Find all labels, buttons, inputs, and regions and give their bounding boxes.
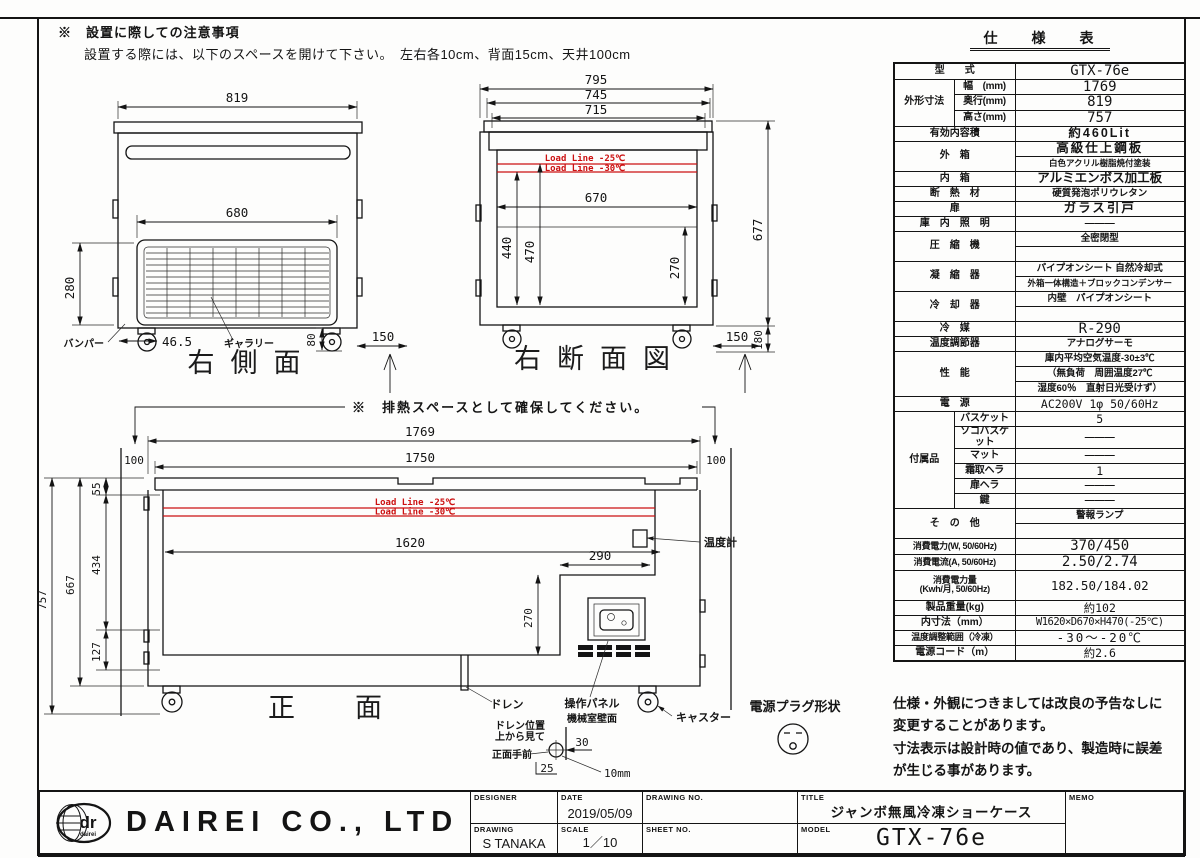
spec-row: 温度調整範囲（冷凍）-30〜-20℃: [894, 630, 1185, 645]
plug-shape-label: 電源プラグ形状: [749, 699, 841, 714]
spec-cell: 警報ランプ: [1015, 509, 1185, 524]
thermometer-label: 温度計: [704, 535, 737, 549]
drain-detail: ドレン位置 上から見て 機械室壁面 30 正面手前 25 10mm: [492, 712, 631, 780]
spec-row: 扉ガラス引戸: [894, 201, 1185, 216]
spec-cell: AC200V 1φ 50/60Hz: [1015, 397, 1185, 412]
spec-cell: ———: [1015, 494, 1185, 509]
drain-pos-label-2: 上から見て: [495, 730, 545, 743]
dim-lid-height: 55: [90, 482, 103, 495]
spec-cell: 約2.6: [1015, 645, 1185, 661]
title-cell: TITLE ジャンボ無風冷凍ショーケース: [797, 792, 1065, 823]
dim-drain-10mm: 10mm: [604, 767, 631, 780]
spec-cell: 内 箱: [894, 171, 1015, 186]
caster-label: キャスター: [676, 711, 731, 724]
dim-total-height: 757: [36, 590, 49, 610]
date-value: 2019/05/09: [558, 806, 642, 821]
spec-cell: 温度調節器: [894, 337, 1015, 352]
spec-cell: 外形寸法: [894, 79, 954, 126]
spec-row: 付属品バスケット5: [894, 412, 1185, 427]
dim-depth-270: 270: [667, 257, 682, 280]
spec-cell: マット: [954, 449, 1015, 464]
company-name: DAIREI CO., LTD: [126, 806, 459, 839]
spec-cell: 扉ヘラ: [954, 479, 1015, 494]
designer-cell: DESIGNER: [470, 792, 557, 823]
dim-body-height: 667: [64, 575, 77, 595]
spec-cell: 370/450: [1015, 539, 1185, 555]
spec-cell: -30〜-20℃: [1015, 630, 1185, 645]
dim-top-715: 715: [585, 102, 608, 117]
spec-table-body: 型 式GTX-76e外形寸法幅 (mm)1769奥行(mm)819高さ(mm)7…: [894, 63, 1185, 661]
drawing-no-cell: DRAWING NO.: [642, 792, 797, 823]
sheet-no-label: SHEET NO.: [646, 825, 691, 834]
dairei-logo: dr dairei: [54, 799, 116, 847]
dim-base-180: 180: [752, 330, 765, 350]
date-label: DATE: [561, 793, 583, 802]
disclaimer-line: 仕様・外観につきましては改良の予告なしに: [893, 693, 1193, 715]
spec-cell: 高級仕上鋼板: [1015, 141, 1185, 156]
spec-row: 凝 縮 器パイプオンシート 自然冷却式: [894, 261, 1185, 276]
machine-wall-label: 機械室壁面: [567, 712, 617, 725]
drawing-label: DRAWING: [474, 825, 514, 834]
side-view-title: 右側面: [188, 348, 317, 378]
dim-machine-height: 270: [522, 608, 535, 628]
spec-cell: （無負荷 周囲温度27℃: [1015, 367, 1185, 382]
dim-gap-left: 100: [124, 454, 144, 467]
disclaimer-line: 変更することがあります。: [893, 715, 1193, 737]
model-value: GTX-76e: [798, 825, 1065, 851]
front-view: ※ 排熱スペースとして確保してください。 100 100 1769 1750 L…: [36, 400, 737, 724]
dim-base-height: 127: [90, 642, 103, 662]
spec-cell: バスケット: [954, 412, 1015, 427]
logo-subtext: dairei: [80, 832, 96, 838]
spec-cell: 182.50/184.02: [1015, 570, 1185, 600]
spec-cell: 庫 内 照 明: [894, 216, 1015, 231]
dim-caster-height: 80: [305, 333, 318, 346]
section-view-title: 右断面図: [514, 344, 686, 374]
panel-label: 操作パネル: [565, 696, 620, 710]
disclaimer-line: 寸法表示は設計時の値であり、製造時に誤差: [893, 738, 1193, 760]
spec-cell: 冷 媒: [894, 321, 1015, 337]
dim-grille-height: 280: [62, 277, 77, 300]
side-view: 819 680 280 46.5 80 150 バンパー ギャラリー 右側面: [62, 90, 407, 393]
installation-note-title: ※ 設置に際しての注意事項: [58, 22, 240, 41]
load-line-25-label: Load Line -25℃: [375, 497, 456, 508]
spec-cell: アルミエンボス加工板: [1015, 171, 1185, 186]
drawing-cell: DRAWING S TANAKA: [470, 823, 557, 853]
spec-cell: [1015, 306, 1185, 321]
spec-cell: ガラス引戸: [1015, 201, 1185, 216]
spec-cell: 消費電流(A, 50/60Hz): [894, 555, 1015, 571]
spec-cell: 湿度60％ 直射日光受けず）: [1015, 382, 1185, 397]
spec-cell: 圧 縮 機: [894, 231, 1015, 261]
power-plug: 電源プラグ形状: [749, 699, 841, 754]
disclaimer-line: が生じる事があります。: [893, 760, 1193, 782]
spec-row: 外 箱高級仕上鋼板: [894, 141, 1185, 156]
spec-cell: 消費電力量 (Kwh/月, 50/60Hz): [894, 570, 1015, 600]
dim-rear-clearance: 150: [372, 329, 395, 344]
load-line-30-label: Load Line -30℃: [375, 507, 456, 518]
spec-cell: 性 能: [894, 352, 1015, 397]
spec-cell: 外箱一体構造＋ブロックコンデンサー: [1015, 276, 1185, 291]
spec-cell: ———: [1015, 479, 1185, 494]
spec-cell: 型 式: [894, 63, 1015, 79]
spec-row: 有効内容積約460Lit: [894, 126, 1185, 141]
spec-cell: そ の 他: [894, 509, 1015, 539]
spec-cell: 製品重量(kg): [894, 600, 1015, 615]
disclaimer-notes: 仕様・外観につきましては改良の予告なしに 変更することがあります。 寸法表示は設…: [893, 693, 1193, 782]
designer-label: DESIGNER: [474, 793, 517, 802]
spec-cell: 約102: [1015, 600, 1185, 615]
scale-value: 1／10: [558, 832, 642, 851]
dim-inner-width: 670: [585, 190, 608, 205]
spec-table: 型 式GTX-76e外形寸法幅 (mm)1769奥行(mm)819高さ(mm)7…: [893, 62, 1186, 662]
load-line-30-label: Load Line -30℃: [545, 163, 626, 174]
spec-row: 断 熱 材硬質発泡ポリウレタン: [894, 186, 1185, 201]
spec-cell: [1015, 524, 1185, 539]
spec-row: 消費電力量 (Kwh/月, 50/60Hz)182.50/184.02: [894, 570, 1185, 600]
spec-cell: 鍵: [954, 494, 1015, 509]
spec-cell: 消費電力(W, 50/60Hz): [894, 539, 1015, 555]
load-line-25-label: Load Line -25℃: [545, 153, 626, 164]
spec-cell: 霜取ヘラ: [954, 464, 1015, 479]
spec-cell: 約460Lit: [1015, 126, 1185, 141]
spec-cell: ———: [1015, 427, 1185, 449]
front-view-title: 正面: [268, 693, 442, 723]
model-cell: MODEL GTX-76e: [797, 823, 1065, 853]
dim-height-677: 677: [750, 219, 765, 242]
spec-row: 外形寸法幅 (mm)1769: [894, 79, 1185, 95]
spec-row: 温度調節器アナログサーモ: [894, 337, 1185, 352]
spec-cell: 1: [1015, 464, 1185, 479]
spec-row: 内 箱アルミエンボス加工板: [894, 171, 1185, 186]
dim-total-width: 1769: [405, 424, 435, 439]
drain-pos-label-1: ドレン位置: [495, 719, 545, 732]
spec-cell: アナログサーモ: [1015, 337, 1185, 352]
dim-drain-30: 30: [575, 736, 588, 749]
spec-cell: 電源コード（m）: [894, 645, 1015, 661]
spec-cell: 凝 縮 器: [894, 261, 1015, 291]
spec-cell: 電 源: [894, 397, 1015, 412]
dim-depth-470: 470: [522, 241, 537, 264]
bumper-label: バンパー: [64, 338, 105, 350]
spec-cell: 外 箱: [894, 141, 1015, 171]
spec-cell: ソコバスケット: [954, 427, 1015, 449]
scale-cell: SCALE 1／10: [557, 823, 642, 853]
spec-cell: ———: [1015, 216, 1185, 231]
spec-cell: 高さ(mm): [954, 111, 1015, 127]
spec-cell: 内寸法（mm）: [894, 615, 1015, 630]
dim-drain-25: 25: [540, 762, 553, 775]
spec-row: 電源コード（m）約2.6: [894, 645, 1185, 661]
drawing-value: S TANAKA: [471, 836, 557, 851]
spec-cell: 5: [1015, 412, 1185, 427]
spec-cell: 奥行(mm): [954, 95, 1015, 111]
spec-cell: W1620×D670×H470(-25℃): [1015, 615, 1185, 630]
vent-grille: [578, 645, 650, 657]
spec-cell: 819: [1015, 95, 1185, 111]
spec-row: 消費電流(A, 50/60Hz)2.50/2.74: [894, 555, 1185, 571]
control-panel: [588, 598, 645, 640]
dim-top-795: 795: [585, 72, 608, 87]
dim-depth-440: 440: [499, 237, 514, 260]
section-view: Load Line -25℃ Load Line -30℃ 795 745 71…: [476, 72, 775, 393]
dim-gap-right: 100: [706, 454, 726, 467]
spec-cell: R-290: [1015, 321, 1185, 337]
spec-cell: 内壁 パイプオンシート: [1015, 291, 1185, 306]
logo-text: dr: [80, 813, 97, 832]
spec-cell: 1769: [1015, 79, 1185, 95]
spec-cell: 庫内平均空気温度-30±3℃: [1015, 352, 1185, 367]
spec-cell: 全密閉型: [1015, 231, 1185, 246]
spec-cell: 2.50/2.74: [1015, 555, 1185, 571]
title-value: ジャンボ無風冷凍ショーケース: [798, 801, 1065, 821]
installation-note-body: 設置する際には、以下のスペースを開けて下さい。 左右各10cm、背面15cm、天…: [84, 44, 631, 63]
spec-row: 冷 媒R-290: [894, 321, 1185, 337]
spec-row: 内寸法（mm）W1620×D670×H470(-25℃): [894, 615, 1185, 630]
memo-label: MEMO: [1069, 793, 1094, 802]
spec-row: 製品重量(kg)約102: [894, 600, 1185, 615]
spec-row: 圧 縮 機全密閉型: [894, 231, 1185, 246]
spec-row: 電 源AC200V 1φ 50/60Hz: [894, 397, 1185, 412]
dim-grille-width: 680: [226, 205, 249, 220]
dim-side-width: 819: [226, 90, 249, 105]
front-side-label: 正面手前: [492, 748, 532, 761]
heat-space-note: ※ 排熱スペースとして確保してください。: [352, 400, 649, 415]
title-block: dr dairei DAIREI CO., LTD DESIGNER DRAWI…: [38, 790, 1185, 855]
spec-cell: パイプオンシート 自然冷却式: [1015, 261, 1185, 276]
dim-top-745: 745: [585, 87, 608, 102]
spec-cell: 硬質発泡ポリウレタン: [1015, 186, 1185, 201]
spec-cell: 幅 (mm): [954, 79, 1015, 95]
memo-cell: MEMO: [1065, 792, 1184, 853]
spec-row: 性 能庫内平均空気温度-30±3℃: [894, 352, 1185, 367]
dim-inner-width: 1620: [395, 535, 425, 550]
spec-cell: GTX-76e: [1015, 63, 1185, 79]
spec-table-title-text: 仕 様 表: [970, 30, 1110, 51]
spec-row: 消費電力(W, 50/60Hz)370/450: [894, 539, 1185, 555]
spec-cell: ———: [1015, 449, 1185, 464]
drawing-no-label: DRAWING NO.: [646, 793, 703, 802]
spec-cell: 付属品: [894, 412, 954, 509]
drain-label: ドレン: [491, 698, 524, 711]
dim-rear-clearance: 150: [726, 329, 749, 344]
spec-row: 型 式GTX-76e: [894, 63, 1185, 79]
spec-row: 庫 内 照 明———: [894, 216, 1185, 231]
spec-cell: 有効内容積: [894, 126, 1015, 141]
spec-cell: 冷 却 器: [894, 291, 1015, 321]
spec-table-title: 仕 様 表: [893, 28, 1186, 48]
dim-machine-width: 290: [589, 548, 612, 563]
spec-row: 冷 却 器内壁 パイプオンシート: [894, 291, 1185, 306]
spec-cell: 扉: [894, 201, 1015, 216]
spec-cell: 温度調整範囲（冷凍）: [894, 630, 1015, 645]
spec-cell: [1015, 246, 1185, 261]
sheet-no-cell: SHEET NO.: [642, 823, 797, 853]
dim-mid-height: 434: [90, 555, 103, 575]
spec-cell: 白色アクリル樹脂焼付塗装: [1015, 156, 1185, 171]
dim-lid-width: 1750: [405, 450, 435, 465]
spec-cell: 757: [1015, 111, 1185, 127]
spec-row: そ の 他警報ランプ: [894, 509, 1185, 524]
spec-cell: 断 熱 材: [894, 186, 1015, 201]
company-cell: dr dairei DAIREI CO., LTD: [40, 792, 470, 853]
date-cell: DATE 2019/05/09: [557, 792, 642, 823]
dim-caster-offset: 46.5: [162, 334, 192, 349]
drawing-sheet: { "colors": { "accent_red": "#cc1111", "…: [0, 0, 1200, 858]
